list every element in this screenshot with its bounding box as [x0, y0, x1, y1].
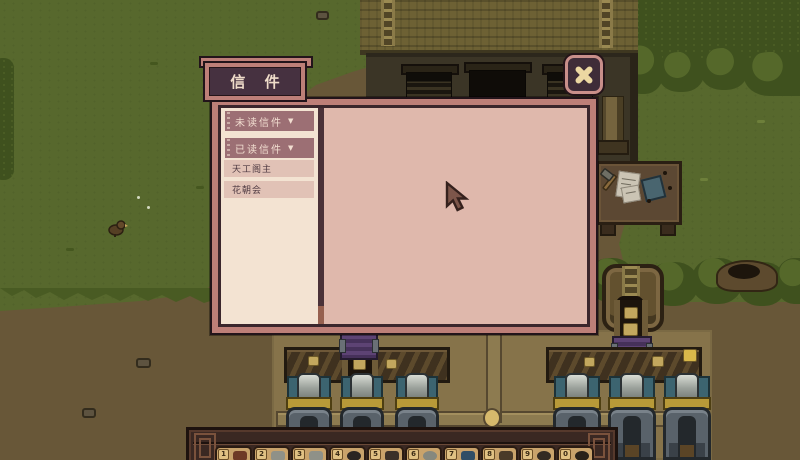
hopper-machine[interactable]	[340, 333, 378, 360]
hotbar-slot-2[interactable]: 2	[253, 446, 290, 460]
bush	[700, 48, 748, 90]
ink-dot	[647, 199, 651, 203]
grass-tuft	[757, 120, 765, 123]
slot-number: 9	[522, 449, 533, 460]
ore-on-belt	[584, 357, 595, 367]
filter-read-button[interactable]: 已读信件 ▼	[225, 138, 314, 158]
ore-on-belt	[386, 359, 397, 369]
slot-number: 3	[294, 449, 305, 460]
slot-number: 0	[560, 449, 571, 460]
slot-item-icon	[309, 451, 323, 460]
press-machine[interactable]	[395, 376, 439, 432]
letter-item-label: 花朝会	[232, 183, 262, 196]
slot-item-icon	[423, 451, 437, 460]
slot-item-icon	[347, 451, 361, 460]
slot-item-icon	[499, 451, 513, 460]
paper-sheet	[621, 185, 642, 204]
letter-item[interactable]: 花朝会	[224, 181, 314, 198]
hotbar-slot-1[interactable]: 1	[215, 446, 252, 460]
hotbar-slot-0[interactable]: 0	[557, 446, 594, 460]
slot-item-icon	[385, 451, 399, 460]
rail-junction	[483, 408, 501, 428]
building-wall-shade	[630, 53, 638, 163]
mine-ladder[interactable]	[622, 266, 640, 296]
grass-tuft	[150, 62, 158, 65]
window	[406, 72, 452, 99]
letter-item[interactable]: 天工阁主	[224, 160, 314, 177]
slot-number: 7	[446, 449, 457, 460]
hotbar-slot-5[interactable]: 5	[367, 446, 404, 460]
ore-on-belt	[308, 356, 319, 366]
flower	[147, 206, 150, 209]
ink-dot	[668, 186, 672, 190]
filter-unread-label: 未读信件	[235, 114, 283, 129]
press-machine[interactable]	[340, 376, 384, 432]
mail-sidebar: 未读信件 ▼ 已读信件 ▼ 天工阁主 花朝会	[221, 108, 318, 324]
hotbar-slot-7[interactable]: 7	[443, 446, 480, 460]
ore-on-belt	[652, 356, 664, 367]
slot-number: 5	[370, 449, 381, 460]
building-roof	[360, 0, 638, 55]
roof-ladder[interactable]	[381, 0, 395, 46]
close-icon	[573, 64, 595, 86]
filter-unread-button[interactable]: 未读信件 ▼	[225, 111, 314, 131]
burrow-hole	[728, 264, 760, 279]
hotbar-groove	[193, 442, 611, 445]
support-pillar-base	[597, 140, 629, 155]
letter-item-label: 天工阁主	[232, 162, 272, 175]
rock	[82, 408, 96, 418]
hotbar-slot-9[interactable]: 9	[519, 446, 556, 460]
hotbar-slot-8[interactable]: 8	[481, 446, 518, 460]
support-pillar	[602, 96, 624, 144]
flower	[137, 196, 140, 199]
slot-number: 1	[218, 449, 229, 460]
close-button[interactable]	[565, 55, 603, 94]
filter-read-label: 已读信件	[235, 141, 283, 156]
hotbar-ornament	[194, 433, 216, 460]
panel-divider	[318, 108, 324, 324]
slot-item-icon	[271, 451, 285, 460]
bush	[744, 52, 800, 96]
grass-tuft	[66, 248, 74, 251]
bush-row	[776, 258, 800, 304]
door[interactable]	[469, 70, 526, 100]
ore-chunk-gold	[683, 349, 697, 362]
letter-content-area	[324, 108, 587, 324]
mouse-cursor	[443, 181, 471, 213]
press-machine[interactable]	[663, 376, 711, 460]
panel-title: 信 件	[209, 67, 301, 96]
roof-ladder[interactable]	[599, 0, 613, 48]
hotbar-slot-3[interactable]: 3	[291, 446, 328, 460]
hotbar-slot-6[interactable]: 6	[405, 446, 442, 460]
slot-item-icon	[537, 451, 551, 460]
slot-item-icon	[233, 451, 247, 460]
scrollbar-thumb[interactable]	[318, 306, 324, 324]
ink-dot	[663, 171, 667, 175]
rock	[136, 358, 151, 368]
chevron-down-icon: ▼	[288, 144, 293, 152]
slot-number: 8	[484, 449, 495, 460]
mail-panel: 未读信件 ▼ 已读信件 ▼ 天工阁主 花朝会	[210, 97, 598, 335]
slot-number: 2	[256, 449, 267, 460]
grass-tuft	[700, 178, 708, 181]
grass-tuft	[196, 186, 204, 189]
slot-item-icon	[461, 451, 475, 460]
press-machine[interactable]	[286, 376, 332, 432]
mail-panel-body: 未读信件 ▼ 已读信件 ▼ 天工阁主 花朝会	[218, 105, 590, 327]
title-tab: 信 件	[203, 61, 307, 102]
chevron-down-icon: ▼	[288, 117, 293, 125]
hotbar-slot-4[interactable]: 4	[329, 446, 366, 460]
tree-left-edge	[0, 58, 14, 180]
rock	[316, 11, 329, 20]
game-viewport: 1 2 3 4 5 6 7 8 9 0 未读信件 ▼	[0, 0, 800, 460]
slot-item-icon	[575, 451, 589, 460]
bush	[658, 52, 704, 92]
bird-critter[interactable]	[106, 218, 128, 238]
slot-number: 6	[408, 449, 419, 460]
slot-number: 4	[332, 449, 343, 460]
